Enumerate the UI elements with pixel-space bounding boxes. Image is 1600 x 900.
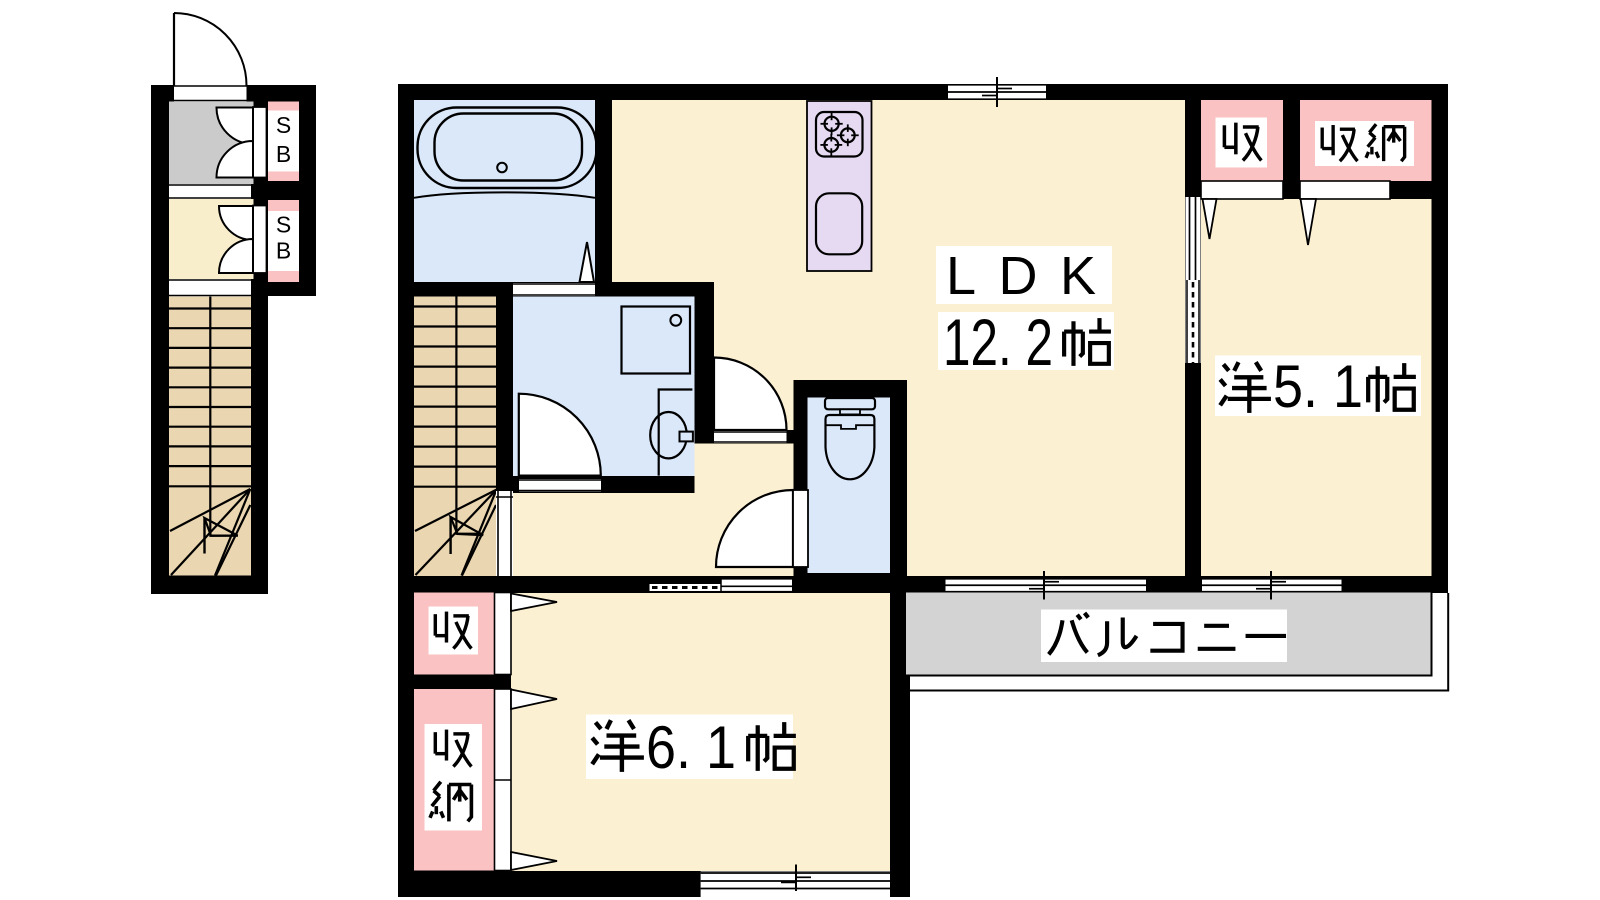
svg-text:LDK: LDK xyxy=(946,246,1096,306)
svg-text:6. 1: 6. 1 xyxy=(646,714,736,781)
svg-text:5. 1: 5. 1 xyxy=(1273,353,1363,420)
svg-text:12. 2: 12. 2 xyxy=(943,305,1053,379)
svg-text:S: S xyxy=(276,112,291,138)
svg-text:B: B xyxy=(276,238,291,264)
svg-text:B: B xyxy=(276,141,291,167)
svg-text:S: S xyxy=(276,212,291,238)
